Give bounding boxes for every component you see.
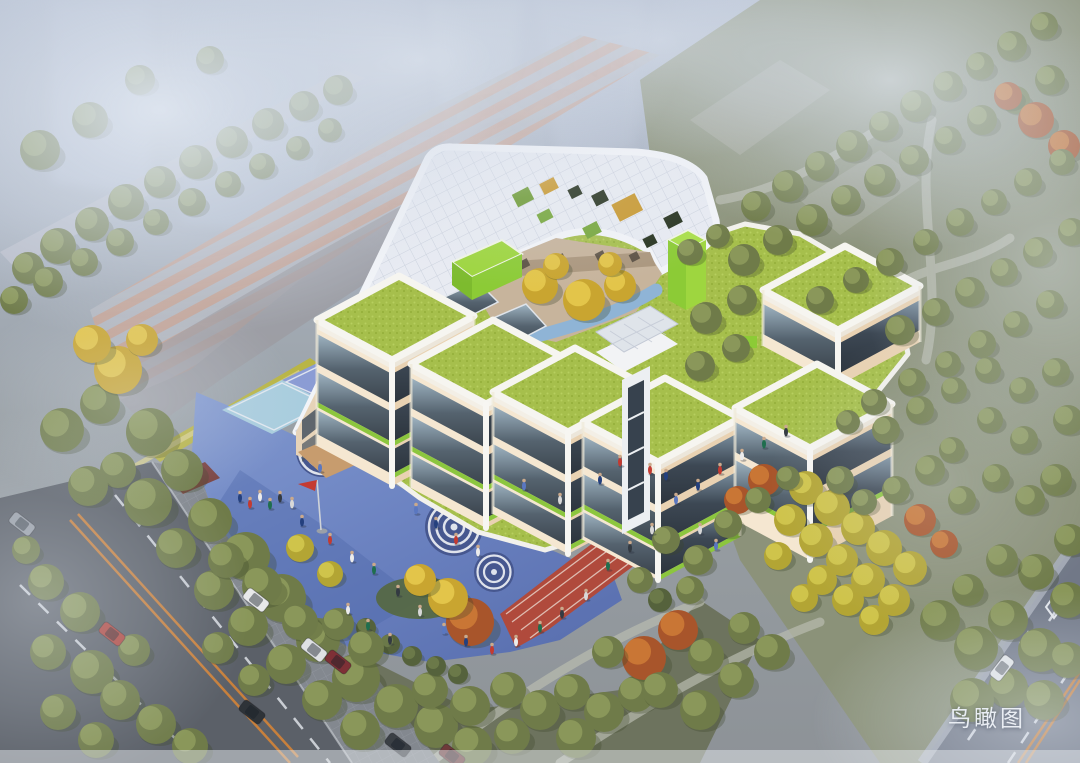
person-head xyxy=(268,498,272,502)
person-body xyxy=(718,466,722,475)
person-head xyxy=(300,515,304,519)
person-head xyxy=(278,491,282,495)
person-head xyxy=(328,533,332,537)
person-body xyxy=(366,622,370,631)
tree-highlight xyxy=(724,335,741,352)
person-head xyxy=(454,533,458,537)
person-body xyxy=(418,608,422,617)
tree-highlight xyxy=(304,682,328,706)
tree-highlight xyxy=(522,692,546,716)
tree-highlight xyxy=(558,720,582,744)
person-head xyxy=(464,635,468,639)
person-head xyxy=(366,619,370,623)
person-head xyxy=(346,603,350,607)
person-body xyxy=(290,500,294,509)
tree-highlight xyxy=(747,488,763,504)
person-head xyxy=(606,559,610,563)
person-head xyxy=(350,551,354,555)
tree-highlight xyxy=(324,610,343,629)
person-head xyxy=(628,541,632,545)
person-body xyxy=(560,610,564,619)
tree-highlight xyxy=(586,694,610,718)
person-body xyxy=(522,482,526,491)
person-head xyxy=(648,463,652,467)
tree xyxy=(754,634,795,672)
person-head xyxy=(248,497,252,501)
person-body xyxy=(664,472,668,481)
person-head xyxy=(318,461,322,465)
tree-highlight xyxy=(687,353,705,371)
tree-highlight xyxy=(716,511,733,528)
person-head xyxy=(414,503,418,507)
person-head xyxy=(476,545,480,549)
tree-highlight xyxy=(556,676,578,698)
tree-highlight xyxy=(284,606,306,628)
person-body xyxy=(538,624,542,633)
person-body xyxy=(442,626,446,635)
person-head xyxy=(418,605,422,609)
person-body xyxy=(628,544,632,553)
person-head xyxy=(664,469,668,473)
tree-highlight xyxy=(625,638,651,664)
aerial-rendering: 鸟瞰图 xyxy=(0,0,1080,763)
person-body xyxy=(762,440,766,449)
person-body xyxy=(558,496,562,505)
person-body xyxy=(238,494,242,503)
circle-target xyxy=(474,552,514,592)
tree-highlight xyxy=(660,612,684,636)
person-body xyxy=(606,562,610,571)
tree-highlight xyxy=(692,304,711,323)
tree xyxy=(450,686,496,728)
person-body xyxy=(476,548,480,557)
tree xyxy=(676,576,708,605)
tree-highlight xyxy=(288,535,305,552)
tree-highlight xyxy=(730,246,749,265)
tree-highlight xyxy=(720,664,742,686)
tree-highlight xyxy=(449,665,461,677)
person-body xyxy=(350,554,354,563)
tree-highlight xyxy=(730,614,749,633)
tree-highlight xyxy=(377,686,403,712)
person-body xyxy=(248,500,252,509)
tree-highlight xyxy=(808,287,825,304)
tree-highlight xyxy=(342,712,366,736)
person-body xyxy=(584,592,588,601)
person-head xyxy=(558,493,562,497)
tree-highlight xyxy=(454,728,478,752)
tree-highlight xyxy=(654,527,671,544)
person-head xyxy=(514,635,518,639)
person-body xyxy=(434,520,438,529)
person-head xyxy=(388,633,392,637)
person-head xyxy=(714,539,718,543)
tree-highlight xyxy=(685,547,703,565)
person-head xyxy=(696,479,700,483)
tree-highlight xyxy=(414,674,436,696)
tree-highlight xyxy=(417,706,443,732)
person-body xyxy=(514,638,518,647)
tree-highlight xyxy=(845,268,861,284)
tree-highlight xyxy=(620,678,642,700)
person-head xyxy=(238,491,242,495)
person-head xyxy=(372,563,376,567)
tree-highlight xyxy=(496,720,518,742)
person-body xyxy=(454,536,458,545)
person-body xyxy=(318,464,322,473)
tree-highlight xyxy=(319,562,335,578)
rendering-canvas xyxy=(0,0,1080,763)
person-head xyxy=(718,463,722,467)
person-body xyxy=(490,646,494,655)
person-body xyxy=(714,542,718,551)
tree-highlight xyxy=(729,287,747,305)
tree xyxy=(718,662,759,700)
person-head xyxy=(396,585,400,589)
person-body xyxy=(396,588,400,597)
tree-highlight xyxy=(629,568,645,584)
tree-highlight xyxy=(594,638,613,657)
tree-highlight xyxy=(792,585,809,602)
person-body xyxy=(650,526,654,535)
person-body xyxy=(698,526,702,535)
tree-highlight xyxy=(750,466,769,485)
tree-highlight xyxy=(756,636,778,658)
person-head xyxy=(290,497,294,501)
person-head xyxy=(442,623,446,627)
person-head xyxy=(522,479,526,483)
person-body xyxy=(598,476,602,485)
person-body xyxy=(328,536,332,545)
person-body xyxy=(300,518,304,527)
person-body xyxy=(696,482,700,491)
tree xyxy=(648,588,675,613)
person-head xyxy=(762,437,766,441)
person-body xyxy=(464,638,468,647)
person-body xyxy=(618,458,622,467)
tree-highlight xyxy=(766,543,783,560)
tree-highlight xyxy=(240,666,259,685)
person-head xyxy=(698,523,702,527)
stair-core xyxy=(622,366,650,534)
tree-highlight xyxy=(406,566,425,585)
person-head xyxy=(618,455,622,459)
tree-highlight xyxy=(452,688,476,712)
caption-label: 鸟瞰图 xyxy=(948,706,1026,734)
person-body xyxy=(414,506,418,515)
person-head xyxy=(490,643,494,647)
tree-highlight xyxy=(492,674,514,696)
person-head xyxy=(584,589,588,593)
tree-highlight xyxy=(350,632,372,654)
person-head xyxy=(258,490,262,494)
person-head xyxy=(598,473,602,477)
person-body xyxy=(278,494,282,503)
person-body xyxy=(258,493,262,502)
person-head xyxy=(434,517,438,521)
person-head xyxy=(650,523,654,527)
tree-highlight xyxy=(427,657,439,669)
tree-highlight xyxy=(268,646,292,670)
tree-highlight xyxy=(726,487,743,504)
person-head xyxy=(674,493,678,497)
person-body xyxy=(674,496,678,505)
person-head xyxy=(538,621,542,625)
tree xyxy=(448,664,471,685)
person-head xyxy=(740,449,744,453)
person-body xyxy=(346,606,350,615)
tree-highlight xyxy=(403,647,415,659)
tree-highlight xyxy=(644,674,666,696)
tree-highlight xyxy=(682,692,706,716)
person-head xyxy=(560,607,564,611)
person-body xyxy=(268,501,272,510)
person-body xyxy=(372,566,376,575)
tree-highlight xyxy=(690,640,712,662)
person-body xyxy=(388,636,392,645)
tree xyxy=(412,672,453,710)
person-body xyxy=(740,452,744,461)
tree-highlight xyxy=(678,577,695,594)
person-body xyxy=(648,466,652,475)
